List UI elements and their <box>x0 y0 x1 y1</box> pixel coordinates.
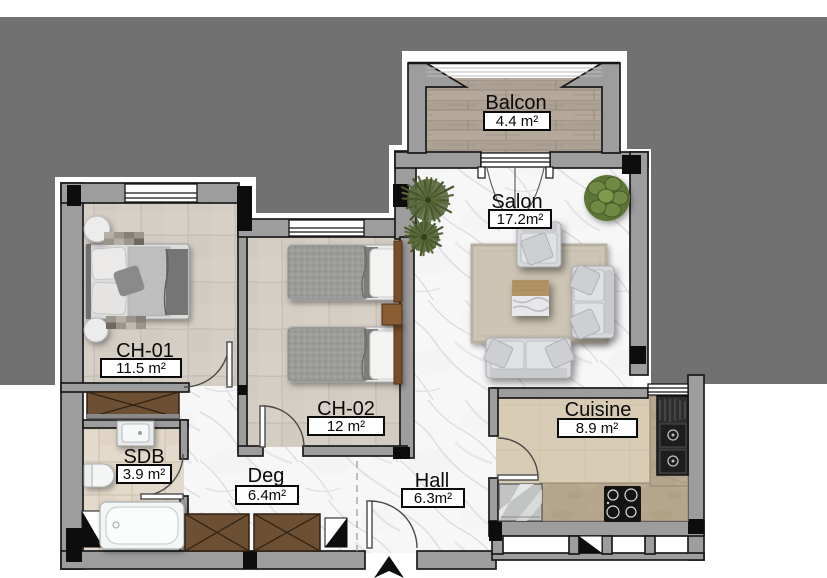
svg-text:4.4 m²: 4.4 m² <box>496 113 539 130</box>
svg-text:Balcon: Balcon <box>485 92 546 114</box>
svg-text:6.4m²: 6.4m² <box>248 487 286 504</box>
svg-text:Deg: Deg <box>248 465 285 487</box>
svg-text:Cuisine: Cuisine <box>565 399 632 421</box>
svg-text:11.5 m²: 11.5 m² <box>116 360 166 377</box>
svg-text:12 m²: 12 m² <box>327 418 365 435</box>
svg-text:17.2m²: 17.2m² <box>497 211 544 228</box>
svg-text:6.3m²: 6.3m² <box>414 490 452 507</box>
svg-text:8.9 m²: 8.9 m² <box>576 420 619 437</box>
svg-text:3.9 m²: 3.9 m² <box>123 466 166 483</box>
